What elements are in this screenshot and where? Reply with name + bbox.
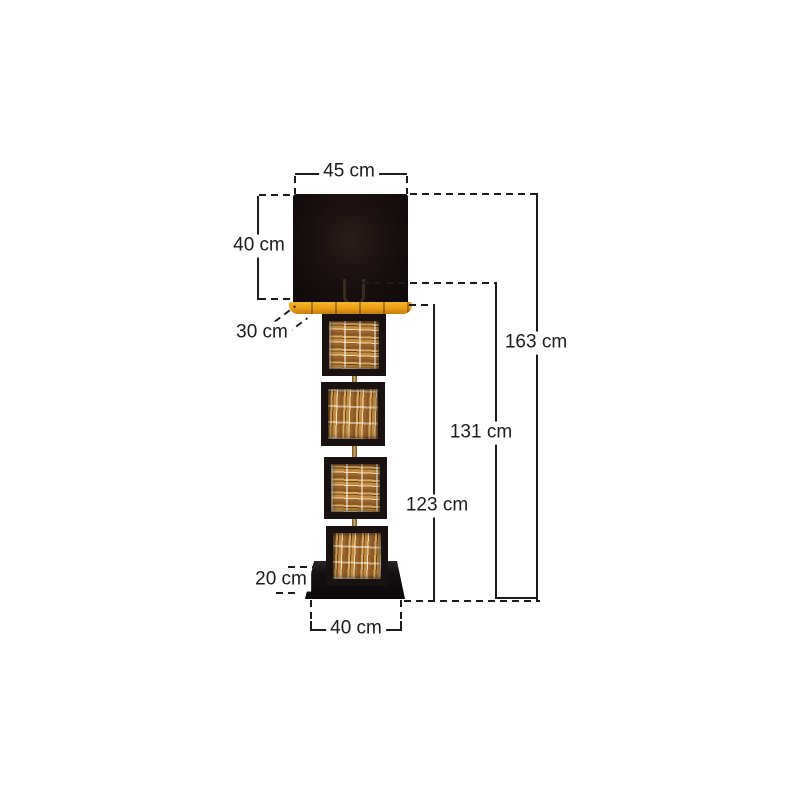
driftwood-panel-2 bbox=[321, 382, 385, 446]
dim-40-ext-bottom bbox=[259, 298, 291, 300]
floor-reference-dash bbox=[404, 600, 540, 602]
dim-40-ext-top bbox=[259, 194, 293, 196]
dim-123-ext-top bbox=[409, 304, 435, 306]
driftwood-panel-1 bbox=[322, 314, 386, 376]
dim-label-base-height: 20 cm bbox=[251, 569, 311, 592]
dim-163-line bbox=[536, 193, 538, 600]
dim-45-tick-left bbox=[294, 176, 296, 194]
dim-label-base-width: 40 cm bbox=[326, 618, 386, 641]
dim-label-height-to-socket: 131 cm bbox=[446, 422, 516, 445]
dim-label-shade-depth: 30 cm bbox=[232, 322, 292, 345]
dim-123-line bbox=[433, 304, 435, 601]
dim-131-ext-top bbox=[362, 282, 497, 284]
dim-163-ext-top bbox=[410, 193, 538, 195]
dim-label-shade-height: 40 cm bbox=[229, 235, 289, 258]
dim-label-height-to-shade-bottom: 123 cm bbox=[402, 495, 472, 518]
driftwood-panel-3 bbox=[324, 457, 387, 519]
floor-bracket-solid bbox=[495, 597, 538, 599]
dim-label-shade-width: 45 cm bbox=[319, 161, 379, 184]
lamp-shade-gold-rim bbox=[289, 302, 412, 314]
dimension-diagram: 45 cm 40 cm 30 cm 163 cm 131 cm 123 cm 2… bbox=[0, 0, 800, 800]
dim-label-total-height: 163 cm bbox=[501, 332, 571, 355]
dim-20-ext-bottom bbox=[276, 592, 299, 594]
dim-45-tick-right bbox=[406, 176, 408, 194]
driftwood-panel-4 bbox=[326, 526, 388, 586]
